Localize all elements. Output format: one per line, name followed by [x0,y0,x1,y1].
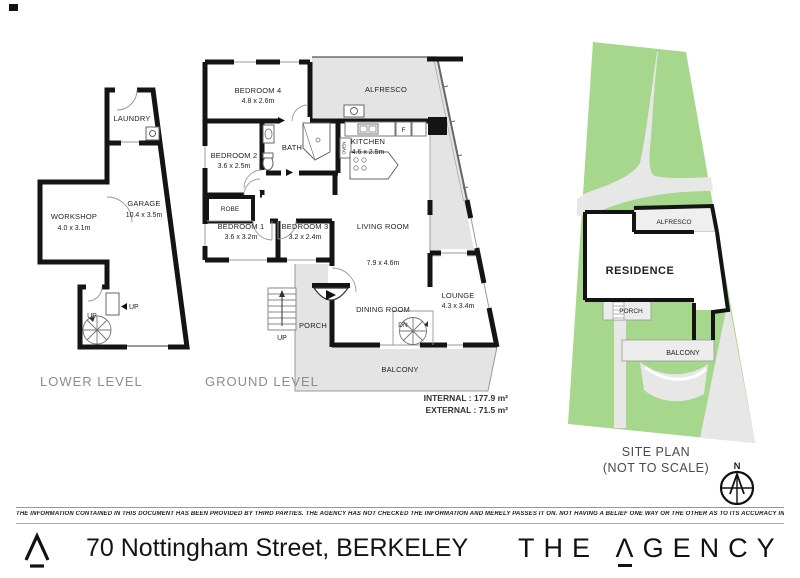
lower-level-plan: UP UP LAUNDRY GARAGE 10.4 x 3.5m WORKSHO… [40,84,187,389]
lounge-label: LOUNGE [442,291,475,300]
workshop-dims: 4.0 x 3.1m [58,225,91,232]
dining-label: DINING ROOM [356,305,410,314]
bedroom4-label: BEDROOM 4 [235,86,282,95]
lower-up-stairs-label: UP [87,313,97,320]
site-porch-label: PORCH [619,308,643,315]
oven-label: OVEN [342,142,347,155]
bedroom2-label: BEDROOM 2 [211,151,258,160]
stairroom-door-gap [86,282,102,292]
external-area: EXTERNAL : 71.5 m² [425,405,508,415]
lower-level-title: LOWER LEVEL [40,374,143,389]
laundry-inner-door-gap [121,138,139,148]
bath-label: BATH [282,143,302,152]
lounge-dims: 4.3 x 3.4m [442,303,475,310]
porch-area [295,264,332,347]
floorplan-page: UP UP LAUNDRY GARAGE 10.4 x 3.5m WORKSHO… [0,0,800,578]
laundry-label: LAUNDRY [113,114,150,123]
garage-dims: 10.4 x 3.5m [126,212,163,219]
workshop-door-gap [102,196,112,222]
workshop-label: WORKSHOP [51,212,97,221]
garage-label: GARAGE [127,199,160,208]
porch-label: PORCH [299,321,327,330]
site-plan-title: SITE PLAN [622,445,690,459]
floorplan-drawing: UP UP LAUNDRY GARAGE 10.4 x 3.5m WORKSHO… [0,0,800,505]
bbq-icon [344,105,364,117]
kitchen-label: KITCHEN [351,137,385,146]
internal-area: INTERNAL : 177.9 m² [424,393,509,403]
site-plan: ALFRESCO RESIDENCE PORCH BALCONY SITE PL… [568,42,755,504]
site-plan-subtitle: (NOT TO SCALE) [603,461,709,475]
alfresco-label: ALFRESCO [365,85,407,94]
lower-spiral-stairs-icon [83,316,111,344]
bedroom2-dims: 3.6 x 2.5m [218,163,251,170]
living-dims: 7.9 x 4.6m [367,260,400,267]
laundry-door-gap [115,84,137,95]
fridge-label: F [402,127,406,134]
laundry-tub-icon [146,127,159,140]
kitchen-dims: 4.6 x 2.5m [352,149,385,156]
site-alfresco-label: ALFRESCO [656,219,691,226]
robe-label: ROBE [221,206,240,213]
brand-lambda: Λ [616,533,643,564]
disclaimer-text: THE INFORMATION CONTAINED IN THIS DOCUME… [16,511,784,517]
compass-icon [721,472,753,504]
agency-logo-mark-icon [20,529,54,569]
bedroom4-dims: 4.8 x 2.6m [242,98,275,105]
brand-gency: GENCY [643,533,784,563]
lower-up-door-label: UP [129,304,139,311]
compass-north-label: N [734,461,741,472]
ground-level-title: GROUND LEVEL [205,374,319,389]
brand-the: THE [518,533,599,563]
divider-bottom [16,523,784,524]
divider-top [16,507,784,508]
ground-level-plan: F OVEN [201,57,508,415]
bedroom3-label: BEDROOM 3 [282,222,329,231]
kitchen-corner-wall [428,117,447,135]
bedroom1-label: BEDROOM 1 [218,222,265,231]
dn-label: DN [398,322,408,329]
porch-up-label: UP [277,335,287,342]
site-balcony-label: BALCONY [666,350,700,357]
balcony-label: BALCONY [381,365,418,374]
porch-stairs-icon [268,288,296,330]
living-label: LIVING ROOM [357,222,409,231]
agency-brand-logo: THE ΛGENCY [518,533,784,564]
bedroom3-dims: 3.2 x 2.4m [289,234,322,241]
bedroom1-dims: 3.6 x 3.2m [225,234,258,241]
rear-path [614,320,626,428]
site-residence-label: RESIDENCE [606,265,675,277]
footer-address: 70 Nottingham Street, BERKELEY [86,534,468,563]
